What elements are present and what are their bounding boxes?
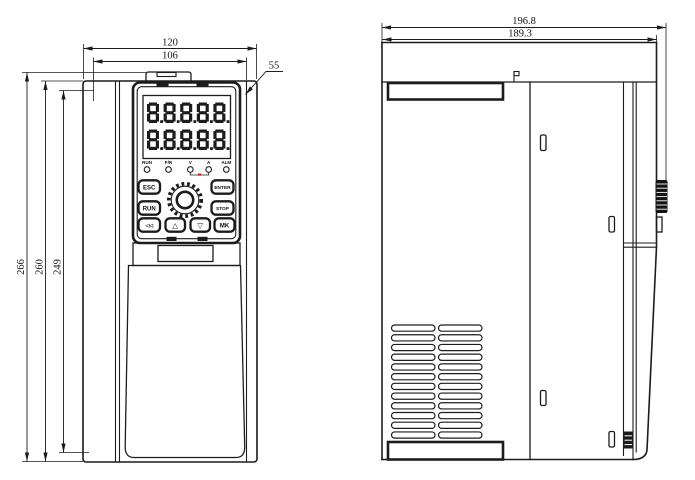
- svg-text:RUN: RUN: [143, 207, 156, 213]
- side-enclosure-body: [382, 43, 668, 460]
- segment-digit: [213, 104, 216, 112]
- dim-label-260: 260: [35, 259, 46, 275]
- segment-digit: [164, 114, 167, 122]
- top-screw-flag: [514, 72, 519, 76]
- vent-slats: [392, 325, 483, 438]
- dim-label-196-8: 196.8: [512, 16, 536, 27]
- digit-decimal-point: [177, 120, 180, 123]
- segment-digit: [172, 104, 175, 112]
- segment-digit: [180, 131, 183, 139]
- dim-label-189-3: 189.3: [508, 29, 532, 40]
- segment-digit: [164, 104, 167, 112]
- led-label-v: V: [189, 160, 193, 165]
- vent-slat: [392, 403, 436, 409]
- top-mounting-tab: [388, 83, 503, 100]
- dim-top-inner-width: 106: [94, 51, 247, 102]
- segment-digit: [149, 111, 157, 114]
- digit-decimal-point: [227, 147, 230, 150]
- segment-digit: [189, 131, 192, 139]
- vent-slat: [392, 374, 436, 380]
- segment-digit: [213, 131, 216, 139]
- keypad-bottom-latch: [167, 237, 177, 241]
- bottom-mounting-tab: [388, 442, 503, 460]
- esc-button: ESC: [139, 180, 161, 193]
- vent-slat: [392, 393, 436, 399]
- segment-digit: [222, 104, 225, 112]
- digit-decimal-point: [227, 120, 230, 123]
- side-slot: [609, 217, 615, 233]
- dim-keypad-leader: 55: [246, 61, 284, 95]
- segment-digit: [164, 141, 167, 149]
- vent-slat: [392, 364, 436, 370]
- cover-latch: [158, 246, 213, 262]
- keypad-panel: RUN F/R V A ALM ESC: [133, 83, 240, 244]
- segment-digit: [222, 131, 225, 139]
- keypad-top-latch: [157, 83, 169, 87]
- vent-slat: [439, 422, 483, 428]
- led-alm: [224, 167, 230, 173]
- dim-left-inner-height: 249: [53, 91, 95, 453]
- segment-digit: [156, 131, 159, 139]
- segment-digit: [182, 111, 190, 114]
- knob-knurling: [657, 184, 668, 209]
- vent-slat: [439, 344, 483, 350]
- segment-digit: [156, 104, 159, 112]
- segment-digit: [197, 141, 200, 149]
- vent-slat: [392, 354, 436, 360]
- side-slot: [541, 135, 547, 151]
- vent-slat: [392, 383, 436, 389]
- vent-slat: [392, 325, 436, 331]
- segment-digit: [180, 104, 183, 112]
- led-indicators: RUN F/R V A ALM: [142, 160, 231, 176]
- segment-digit: [215, 138, 223, 141]
- led-fr: [166, 167, 172, 173]
- segment-digit: [180, 141, 183, 149]
- keypad-bottom-latch: [198, 237, 208, 241]
- vent-slat: [439, 325, 483, 331]
- dim-label-266: 266: [16, 259, 27, 275]
- segment-digit: [147, 141, 150, 149]
- led-v: [188, 167, 194, 173]
- digit-decimal-point: [193, 147, 196, 150]
- segment-digit: [147, 131, 150, 139]
- front-view: 120 106 55 266 260: [16, 38, 283, 463]
- vent-slat: [392, 412, 436, 418]
- keypad-buttons: ESC ENTER RUN STOP: [139, 180, 235, 231]
- vent-slat: [439, 432, 483, 438]
- side-slot: [541, 391, 547, 406]
- down-button: ▽: [191, 218, 211, 231]
- keypad-top-latch: [197, 83, 209, 87]
- segment-digit: [172, 131, 175, 139]
- knob-mount-tab: [657, 217, 663, 232]
- led-unit-mark: [198, 174, 201, 176]
- digit-decimal-point: [210, 120, 213, 123]
- vent-slat: [439, 383, 483, 389]
- segment-digit: [213, 114, 216, 122]
- double-left-arrow-icon: ◁◁: [145, 223, 154, 229]
- digit-decimal-point: [193, 120, 196, 123]
- segment-digit: [197, 114, 200, 122]
- segment-digit: [189, 104, 192, 112]
- dim-depth-inner: 189.3: [383, 29, 657, 43]
- led-a: [206, 167, 212, 173]
- vent-slat: [392, 335, 436, 341]
- seven-segment-display: [147, 103, 229, 151]
- segment-digit: [147, 114, 150, 122]
- side-slot: [609, 432, 615, 448]
- segment-digit: [147, 104, 150, 112]
- segment-digit: [206, 131, 209, 139]
- stop-button: STOP: [212, 201, 234, 214]
- segment-digit: [206, 104, 209, 112]
- back-button: ◁◁: [139, 218, 161, 231]
- dim-label-120: 120: [162, 38, 178, 49]
- vent-slat: [439, 335, 483, 341]
- segment-digit: [213, 141, 216, 149]
- segment-digit: [164, 131, 167, 139]
- led-run: [144, 167, 150, 173]
- vent-slat: [439, 364, 483, 370]
- svg-text:STOP: STOP: [216, 206, 230, 212]
- digit-decimal-point: [160, 147, 163, 150]
- vent-slat: [392, 422, 436, 428]
- segment-digit: [180, 114, 183, 122]
- led-label-fr: F/R: [165, 160, 173, 165]
- jog-dial-knob: [177, 192, 193, 208]
- digit-decimal-point: [160, 120, 163, 123]
- top-hanger-slot: [157, 73, 176, 77]
- side-view: 196.8 189.3: [382, 16, 668, 460]
- dim-label-55: 55: [269, 61, 280, 72]
- vent-slat: [439, 393, 483, 399]
- vent-slat: [439, 354, 483, 360]
- led-label-run: RUN: [142, 160, 153, 165]
- digit-decimal-point: [177, 147, 180, 150]
- bottom-connector-block: [624, 432, 633, 449]
- enter-button: ENTER: [212, 180, 234, 193]
- mk-button: MK: [215, 218, 235, 231]
- segment-digit: [215, 111, 223, 114]
- technical-drawing-page: 120 106 55 266 260: [0, 0, 695, 480]
- dim-label-249: 249: [53, 259, 64, 275]
- segment-digit: [182, 138, 190, 141]
- led-label-alm: ALM: [221, 160, 231, 165]
- segment-digit: [199, 111, 207, 114]
- segment-digit: [166, 111, 174, 114]
- lower-terminal-cover: [125, 266, 245, 458]
- vfd-dimension-drawing: 120 106 55 266 260: [0, 0, 695, 480]
- dim-label-106: 106: [162, 51, 178, 62]
- vent-slat: [392, 344, 436, 350]
- vent-slat: [392, 432, 436, 438]
- digit-decimal-point: [210, 147, 213, 150]
- vent-slat: [439, 374, 483, 380]
- segment-digit: [197, 104, 200, 112]
- svg-text:ESC: ESC: [143, 186, 156, 192]
- vent-slat: [439, 412, 483, 418]
- led-label-a: A: [207, 160, 211, 165]
- vent-slat: [439, 403, 483, 409]
- segment-digit: [149, 138, 157, 141]
- run-button: RUN: [139, 201, 161, 214]
- svg-text:MK: MK: [220, 224, 230, 230]
- svg-text:ENTER: ENTER: [214, 185, 231, 191]
- segment-digit: [197, 131, 200, 139]
- segment-digit: [166, 138, 174, 141]
- up-button: △: [166, 218, 186, 231]
- jog-dial: [169, 184, 201, 216]
- segment-digit: [199, 138, 207, 141]
